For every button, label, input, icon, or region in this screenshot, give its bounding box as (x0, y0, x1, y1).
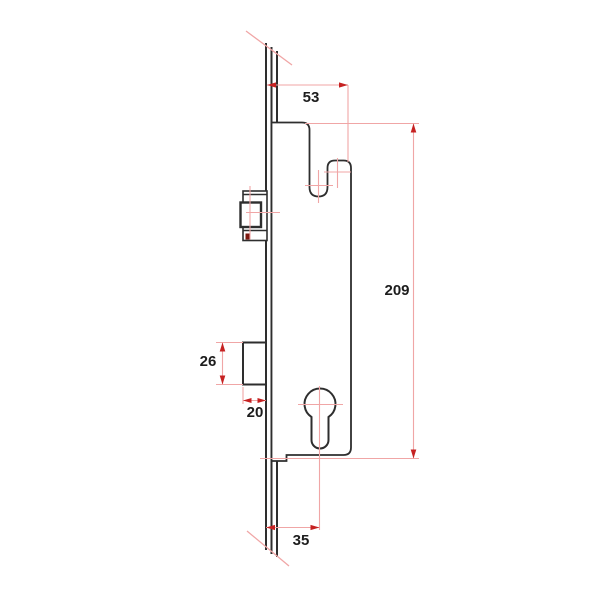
latch-bolt-head (241, 203, 262, 228)
dimension-20: 20 (243, 387, 266, 421)
dimension-label-20: 20 (247, 404, 264, 421)
technical-drawing-page: 53 209 26 20 (0, 0, 600, 600)
lock-case-technical-drawing: 53 209 26 20 (0, 0, 600, 600)
arrowhead-209-bottom (411, 450, 417, 459)
dimension-35: 35 (266, 525, 320, 549)
dimension-label-53: 53 (303, 89, 320, 106)
arrowhead-209-top (411, 124, 417, 133)
arrowhead-20-left (243, 398, 252, 403)
dimension-label-26: 26 (200, 353, 217, 370)
arrowhead-20-right (258, 398, 267, 403)
break-mark-top (246, 31, 292, 65)
arrowhead-35-right (311, 525, 320, 530)
dimension-26: 26 (200, 343, 243, 385)
deadbolt (243, 343, 266, 385)
dimension-label-209: 209 (384, 282, 409, 299)
arrowhead-26-bottom (220, 376, 226, 385)
dimension-label-35: 35 (293, 532, 310, 549)
arrowhead-53-right (339, 82, 348, 87)
arrowhead-26-top (220, 343, 226, 352)
break-mark-bottom (247, 531, 289, 566)
